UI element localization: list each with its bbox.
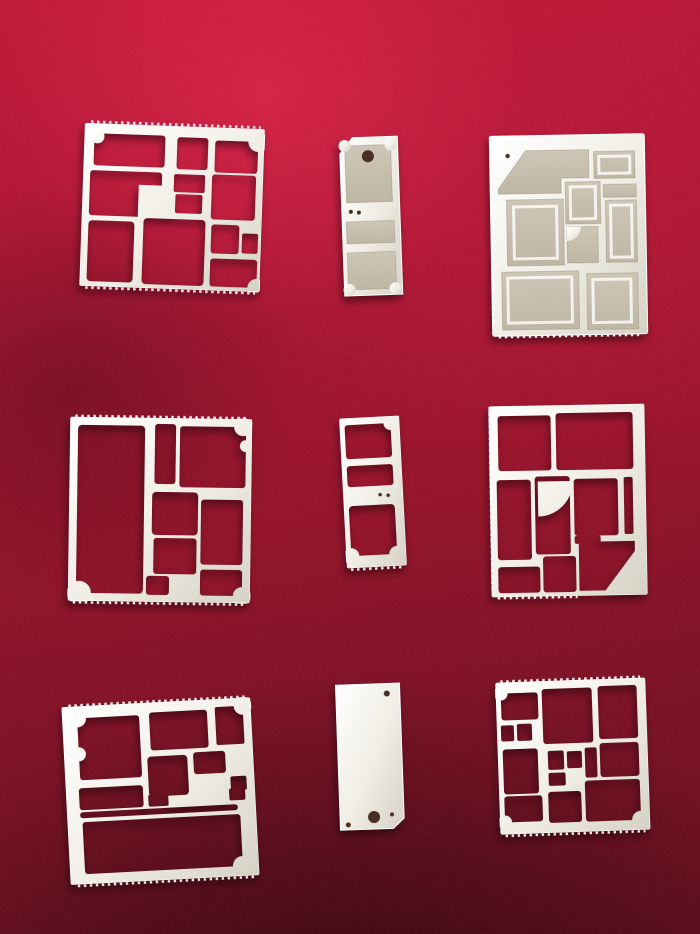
blank-plate-bottom-middle <box>328 675 420 840</box>
shield-frame-bottom-right <box>492 673 660 847</box>
photo-of-metal-shield-parts <box>0 0 700 934</box>
shield-frame-top-left <box>75 117 271 302</box>
shield-cover-top-right <box>481 123 657 348</box>
shield-frame-bottom-left <box>56 683 271 901</box>
shield-cover-top-middle <box>330 128 419 305</box>
shield-frame-middle-left <box>65 410 262 613</box>
shield-frame-middle-right <box>484 399 654 604</box>
shield-frame-middle-center <box>331 409 415 575</box>
